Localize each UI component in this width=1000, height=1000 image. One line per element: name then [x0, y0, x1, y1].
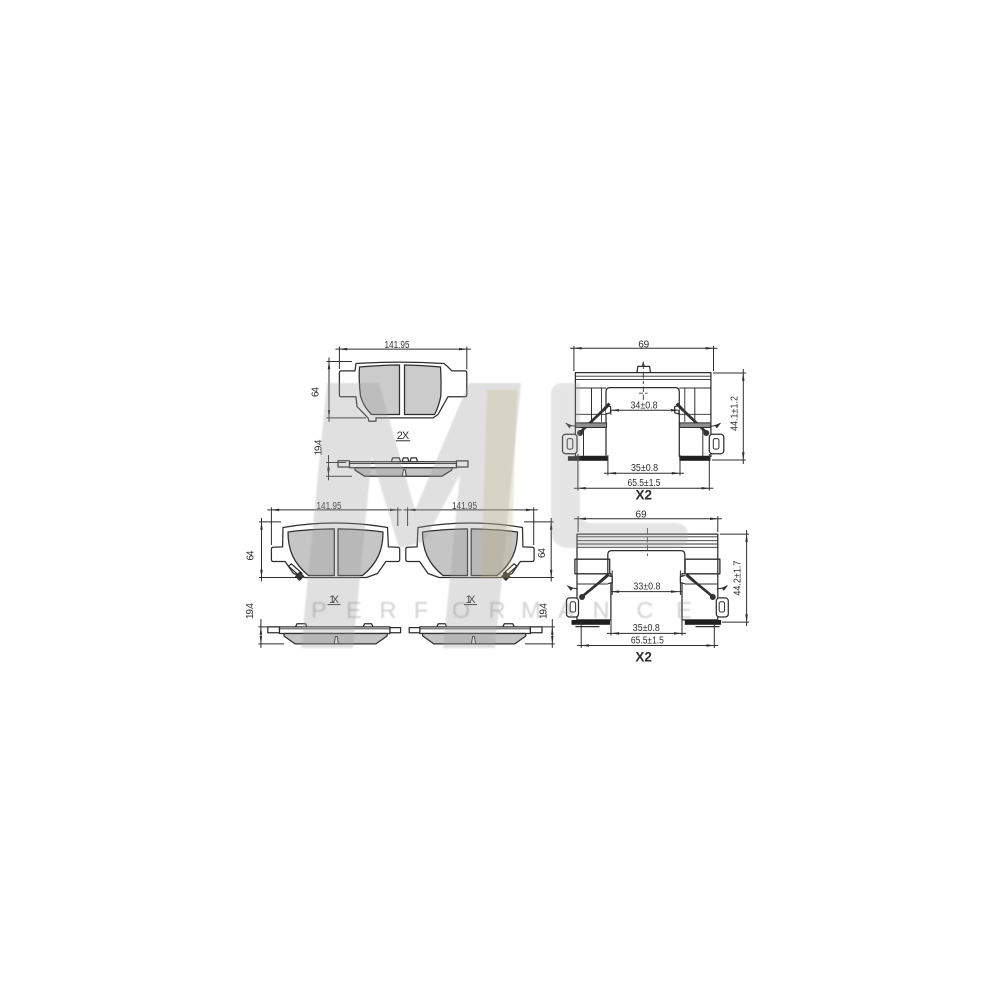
svg-text:35±0.8: 35±0.8 [633, 623, 660, 634]
svg-text:34±0.8: 34±0.8 [631, 401, 658, 412]
svg-text:44.1±1.2: 44.1±1.2 [729, 396, 740, 431]
svg-text:N: N [593, 597, 610, 623]
svg-text:69: 69 [638, 339, 649, 350]
svg-text:E: E [346, 597, 362, 623]
svg-text:C: C [637, 597, 654, 623]
svg-text:A: A [558, 597, 574, 623]
svg-text:35±0.8: 35±0.8 [631, 463, 658, 474]
svg-text:19.4: 19.4 [245, 603, 256, 619]
svg-text:65.5±1.5: 65.5±1.5 [631, 635, 664, 646]
svg-text:X2: X2 [635, 650, 652, 665]
svg-text:44.2±1.7: 44.2±1.7 [733, 560, 744, 595]
svg-text:F: F [414, 597, 428, 623]
svg-text:O: O [452, 597, 470, 623]
svg-text:64: 64 [537, 548, 548, 558]
svg-text:69: 69 [636, 510, 647, 521]
svg-text:R: R [489, 597, 506, 623]
svg-text:33±0.8: 33±0.8 [633, 581, 660, 592]
svg-text:E: E [676, 597, 692, 623]
svg-text:64: 64 [311, 387, 322, 397]
svg-text:P: P [311, 597, 327, 623]
svg-text:R: R [380, 597, 397, 623]
svg-text:X2: X2 [635, 488, 652, 503]
svg-text:2X: 2X [397, 430, 410, 442]
svg-text:141.95: 141.95 [385, 340, 410, 351]
svg-text:64: 64 [246, 550, 257, 560]
svg-text:M: M [521, 597, 541, 623]
